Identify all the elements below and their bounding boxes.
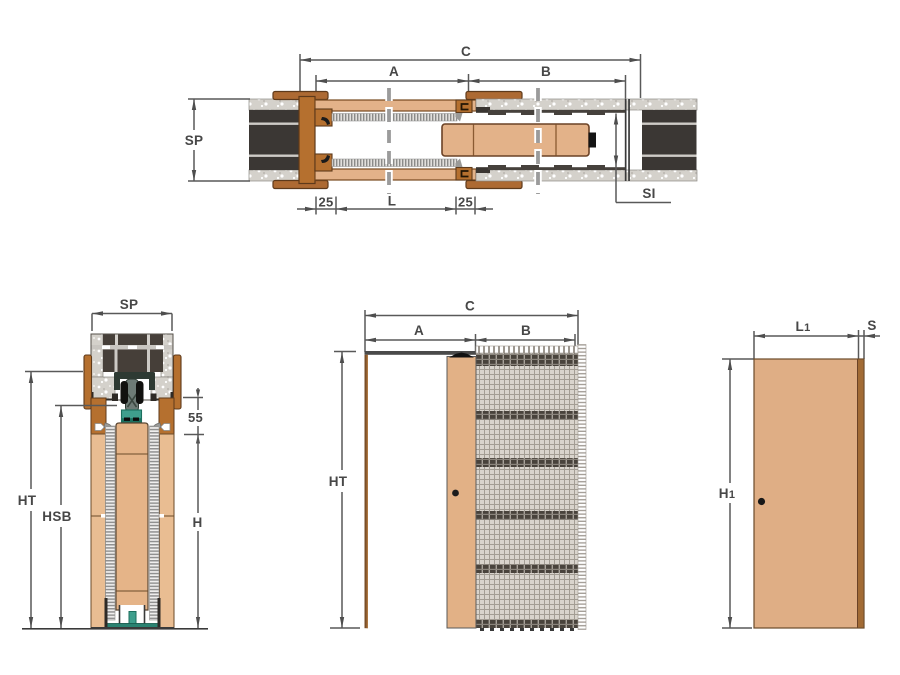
svg-text:HSB: HSB: [42, 509, 71, 524]
svg-text:SP: SP: [185, 133, 204, 148]
svg-text:S: S: [867, 318, 876, 333]
svg-text:C: C: [461, 44, 471, 59]
svg-text:L: L: [388, 194, 397, 209]
svg-text:B: B: [521, 323, 531, 338]
svg-text:SP: SP: [120, 297, 139, 312]
svg-text:H1: H1: [719, 486, 735, 501]
svg-text:HT: HT: [329, 474, 348, 489]
svg-text:SI: SI: [642, 186, 655, 201]
svg-text:25: 25: [458, 195, 473, 210]
svg-text:B: B: [541, 64, 551, 79]
svg-text:C: C: [465, 299, 475, 314]
svg-text:25: 25: [318, 195, 333, 210]
svg-text:A: A: [414, 323, 424, 338]
svg-text:L1: L1: [796, 319, 811, 334]
svg-text:A: A: [389, 64, 399, 79]
svg-text:H: H: [192, 515, 202, 530]
svg-text:HT: HT: [18, 493, 37, 508]
svg-text:55: 55: [188, 410, 203, 425]
